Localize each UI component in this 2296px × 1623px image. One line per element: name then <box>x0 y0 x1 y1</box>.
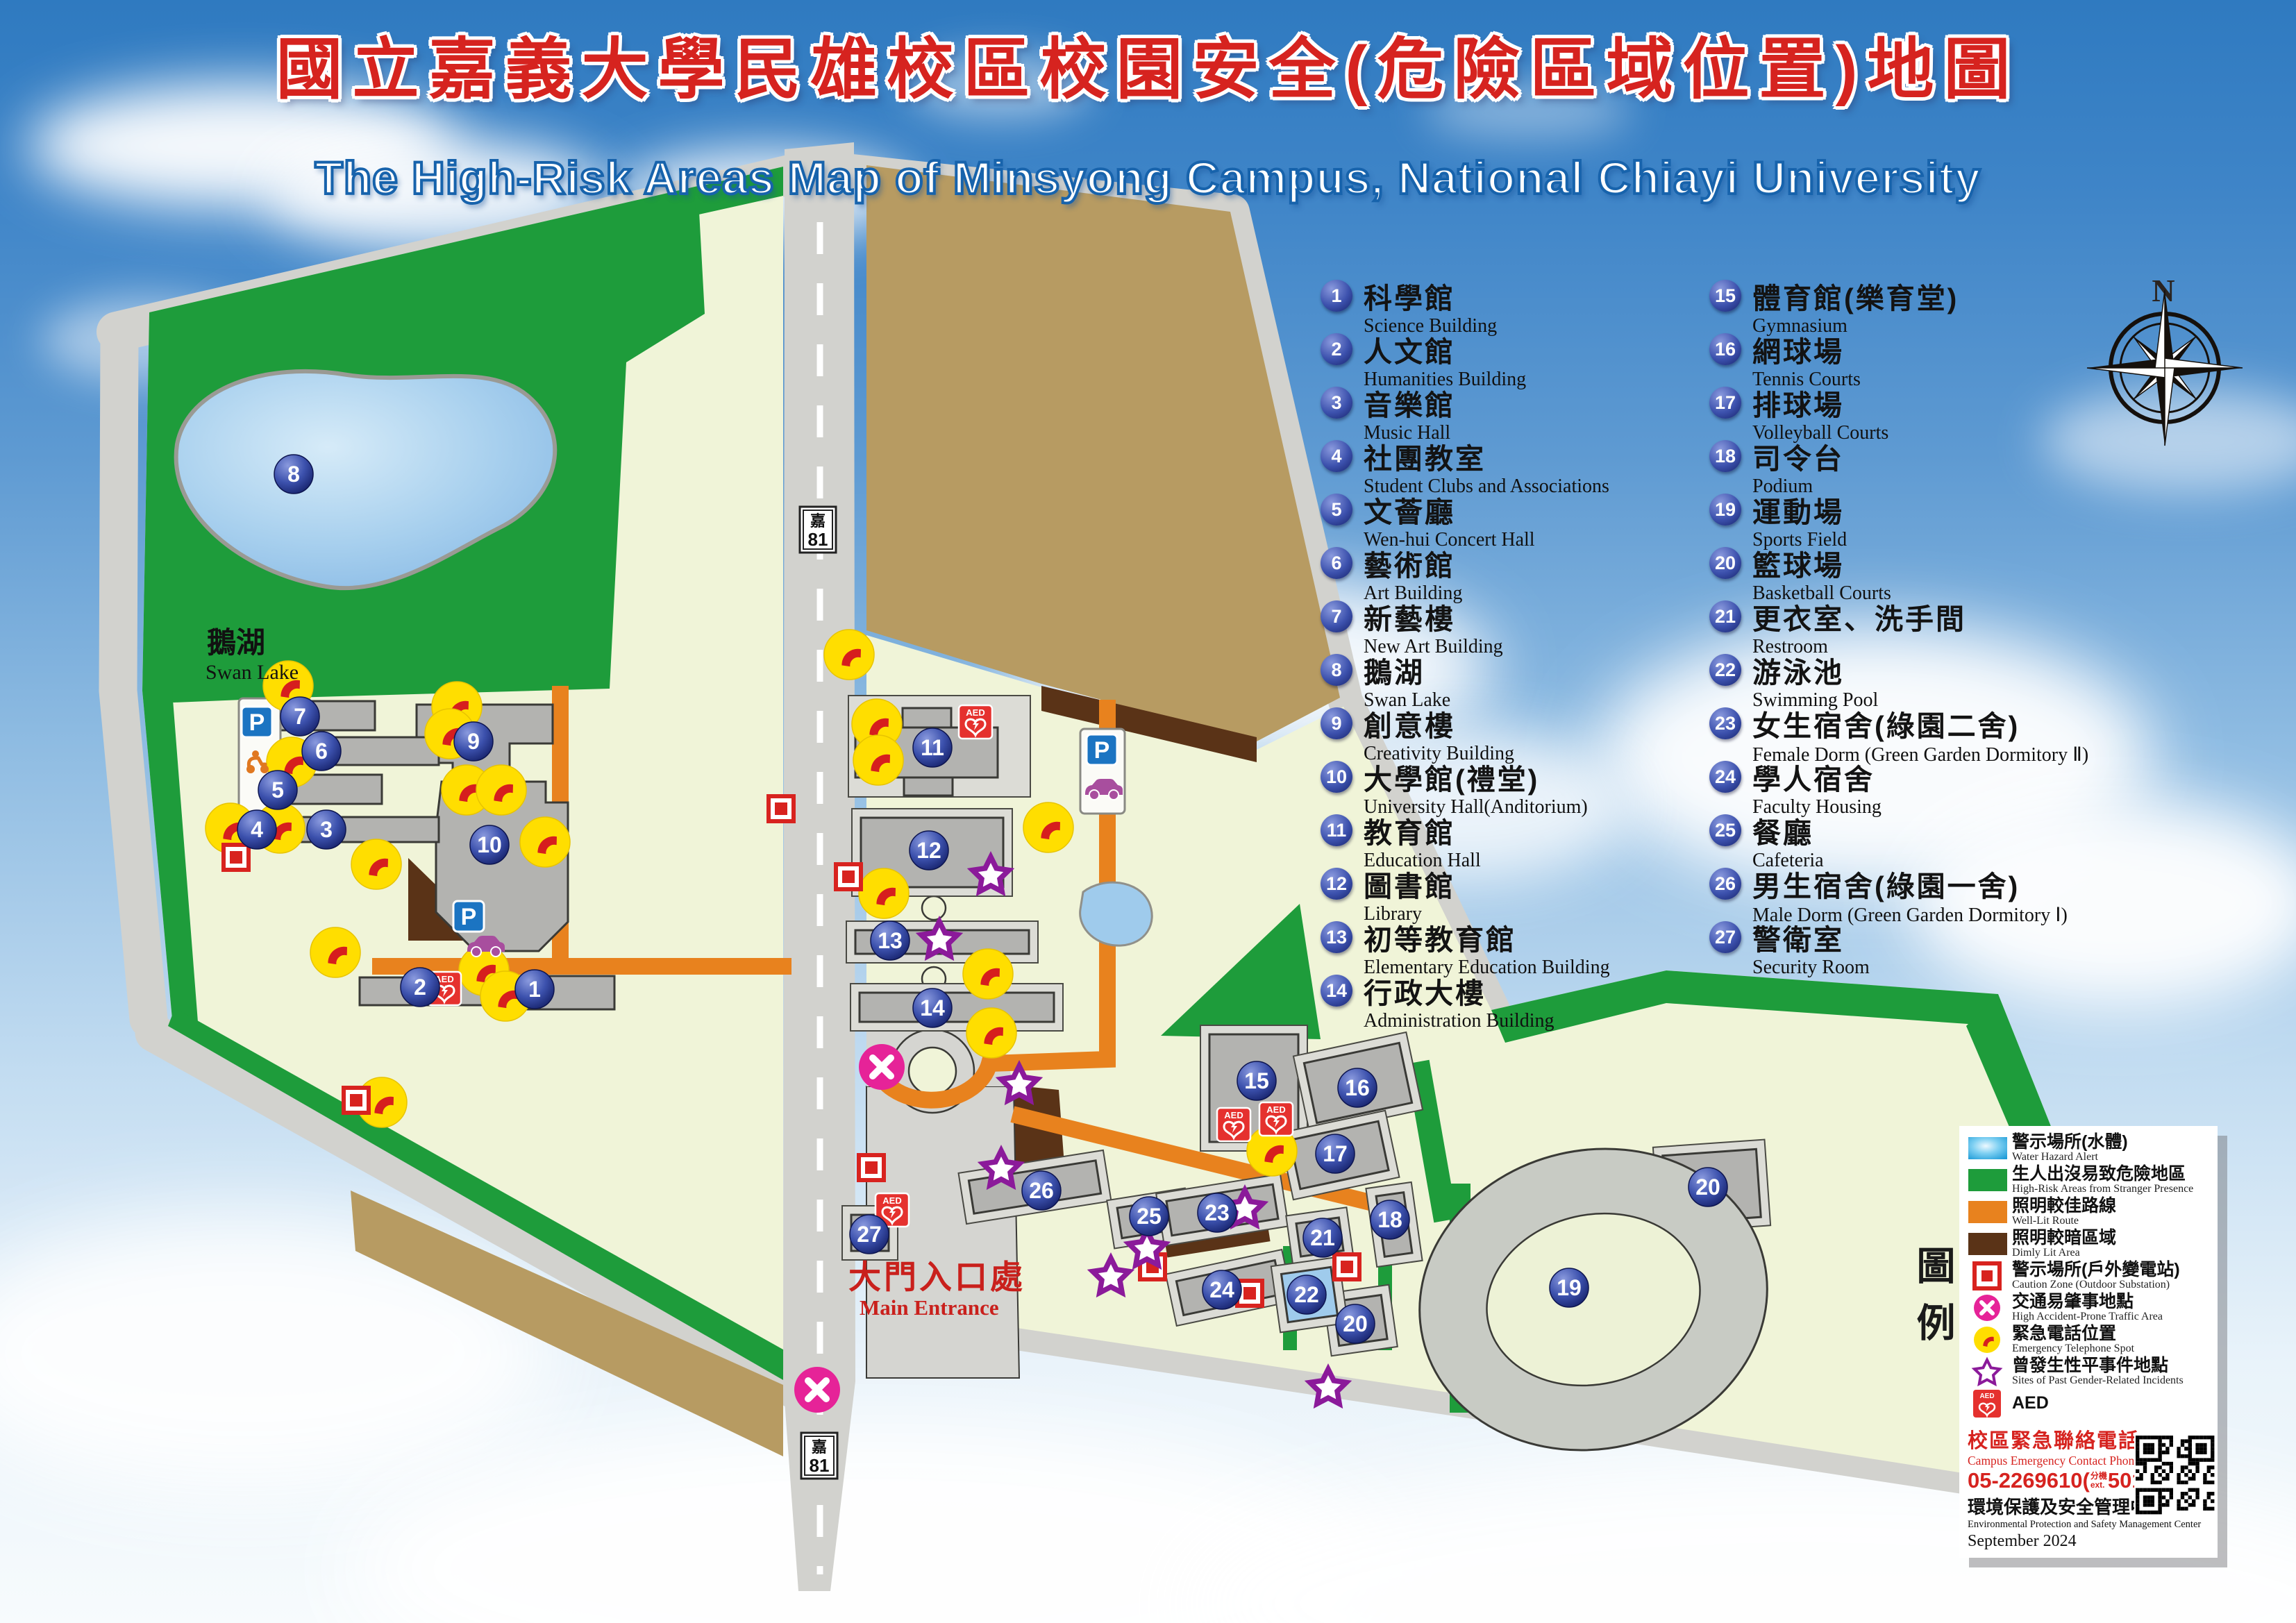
svg-text:12: 12 <box>916 838 941 863</box>
legend-panel-label: 圖例 <box>1905 1245 1961 1359</box>
legend-item-water: 警示場所(水體)Water Hazard Alert <box>1968 1133 2212 1163</box>
list-badge-11: 11 <box>1321 814 1352 846</box>
emergency-phone-icon <box>859 868 909 918</box>
list-label-zh-25: 餐廳 <box>1752 809 1813 851</box>
legend-item-star: 曾發生性平事件地點Sites of Past Gender-Related In… <box>1968 1356 2212 1387</box>
main-entrance-label-en: Main Entrance <box>860 1295 999 1320</box>
list-badge-17: 17 <box>1709 387 1741 419</box>
svg-text:18: 18 <box>1377 1207 1402 1232</box>
list-label-zh-27: 警衛室 <box>1752 916 1844 958</box>
map-marker-7: 7 <box>280 697 319 736</box>
map-marker-22: 22 <box>1287 1275 1326 1314</box>
map-marker-20: 20 <box>1689 1168 1727 1206</box>
legend-text: AED <box>2012 1395 2049 1413</box>
legend-item-substation: 警示場所(戶外變電站)Caution Zone (Outdoor Substat… <box>1968 1261 2212 1291</box>
list-label-zh-26: 男生宿舍(綠園一舍) <box>1752 863 2020 905</box>
map-marker-23: 23 <box>1198 1193 1237 1232</box>
substation-caution-icon <box>769 796 794 821</box>
legend-text: 警示場所(水體)Water Hazard Alert <box>2012 1134 2128 1163</box>
svg-text:15: 15 <box>1244 1068 1269 1093</box>
map-marker-4: 4 <box>237 810 276 849</box>
emergency-phone-icon <box>520 817 570 867</box>
legend-item-traffic: 交通易肇事地點High Accident-Prone Traffic Area <box>1968 1293 2212 1323</box>
list-item-20: 20籃球場Basketball Courts <box>1709 542 2209 593</box>
list-label-zh-18: 司令台 <box>1752 435 1844 477</box>
map-marker-19: 19 <box>1550 1268 1589 1307</box>
phone-ext-en: ext. <box>2090 1481 2107 1490</box>
svg-text:AED: AED <box>966 707 984 718</box>
legend-symbol-water <box>1968 1133 2012 1163</box>
svg-text:AED: AED <box>1979 1393 1994 1400</box>
list-label-zh-21: 更衣室、洗手間 <box>1752 596 1966 637</box>
legend-label-zh: 照明較佳路線 <box>2012 1197 2116 1216</box>
svg-text:10: 10 <box>477 832 502 857</box>
farmland-top-right <box>866 165 1340 741</box>
list-badge-12: 12 <box>1321 868 1352 900</box>
legend-symbol-substation <box>1968 1261 2012 1291</box>
svg-text:P: P <box>1094 737 1110 764</box>
parking-sign-icon: P <box>453 901 484 932</box>
list-item-13: 13初等教育館Elementary Education Building <box>1321 916 1709 967</box>
main-entrance-label-zh: 大門入口處 <box>848 1259 1025 1295</box>
phone-ext: 分機ext. <box>2090 1472 2107 1489</box>
svg-text:13: 13 <box>878 928 903 953</box>
map-marker-16: 16 <box>1338 1068 1377 1107</box>
list-badge-4: 4 <box>1321 440 1352 472</box>
legend-label-zh: 交通易肇事地點 <box>2012 1293 2163 1311</box>
emergency-title-en: Campus Emergency Contact Phone Number <box>1968 1454 2131 1468</box>
svg-text:20: 20 <box>1695 1175 1720 1200</box>
list-badge-18: 18 <box>1709 440 1741 472</box>
legend-text: 照明較暗區域Dimly Lit Area <box>2012 1229 2116 1259</box>
phone-legend-icon <box>1968 1325 2009 1355</box>
legend-item-aed: AEDAED <box>1968 1388 2212 1419</box>
emergency-phone-icon <box>351 839 401 889</box>
list-label-zh-19: 運動場 <box>1752 489 1844 530</box>
list-badge-1: 1 <box>1321 280 1352 312</box>
list-label-zh-22: 游泳池 <box>1752 649 1844 691</box>
brown-legend-icon <box>1968 1229 2009 1259</box>
poster-stage: AEDAEDAEDAEDAEDPPP嘉81嘉81 123456789101112… <box>0 0 2296 1623</box>
svg-text:嘉: 嘉 <box>810 512 826 530</box>
map-marker-9: 9 <box>454 722 493 761</box>
list-label-en-14: Administration Building <box>1364 1010 1709 1032</box>
list-badge-20: 20 <box>1709 547 1741 579</box>
legend-label-zh: 曾發生性平事件地點 <box>2012 1357 2184 1375</box>
emergency-org-zh: 環境保護及安全管理中心 <box>1968 1493 2131 1519</box>
phone-prefix: 05-2269610( <box>1968 1468 2090 1493</box>
list-item-26: 26男生宿舍(綠園一舍)Male Dorm (Green Garden Dorm… <box>1709 863 2209 914</box>
svg-text:25: 25 <box>1137 1204 1162 1229</box>
list-item-15: 15體育館(樂育堂)Gymnasium <box>1709 275 2209 326</box>
map-marker-13: 13 <box>871 921 910 960</box>
emergency-phone-icon <box>853 735 903 785</box>
building <box>860 993 1054 1022</box>
map-marker-10: 10 <box>470 825 509 864</box>
svg-text:20: 20 <box>1343 1311 1368 1336</box>
legend-label-zh: 生人出沒易致危險地區 <box>2012 1166 2193 1184</box>
list-label-zh-24: 學人宿舍 <box>1752 756 1875 798</box>
legend-label-zh: 緊急電話位置 <box>2012 1325 2134 1343</box>
list-badge-3: 3 <box>1321 387 1352 419</box>
svg-text:2: 2 <box>414 975 426 1000</box>
list-badge-5: 5 <box>1321 494 1352 525</box>
list-item-12: 12圖書館Library <box>1321 863 1709 914</box>
list-label-zh-11: 教育館 <box>1364 809 1455 851</box>
list-label-en-27: Security Room <box>1752 957 2209 979</box>
svg-text:16: 16 <box>1345 1075 1370 1100</box>
map-marker-14: 14 <box>913 989 952 1027</box>
list-label-zh-8: 鵝湖 <box>1364 649 1425 691</box>
legend-label-zh: AED <box>2012 1395 2049 1413</box>
emergency-contact: 校區緊急聯絡電話 Campus Emergency Contact Phone … <box>1968 1424 2212 1551</box>
water-legend-icon <box>1968 1133 2009 1163</box>
list-badge-10: 10 <box>1321 761 1352 793</box>
list-badge-8: 8 <box>1321 654 1352 686</box>
list-badge-21: 21 <box>1709 600 1741 632</box>
swan-lake-label-en: Swan Lake <box>206 661 299 684</box>
list-label-zh-2: 人文館 <box>1364 328 1455 370</box>
list-badge-15: 15 <box>1709 280 1741 312</box>
list-item-10: 10大學館(禮堂)University Hall(Anditorium) <box>1321 756 1709 807</box>
list-label-zh-16: 網球場 <box>1752 328 1844 370</box>
list-item-1: 1科學館Science Building <box>1321 275 1709 326</box>
list-item-4: 4社團教室Student Clubs and Associations <box>1321 435 1709 486</box>
list-label-zh-23: 女生宿舍(綠園二舍) <box>1752 703 2020 744</box>
legend-label-en: High Accident-Prone Traffic Area <box>2012 1311 2163 1322</box>
aed-icon: AED <box>1217 1108 1250 1141</box>
list-label-zh-14: 行政大樓 <box>1364 970 1486 1011</box>
list-label-zh-7: 新藝樓 <box>1364 596 1455 637</box>
svg-text:AED: AED <box>1224 1110 1243 1120</box>
substation-caution-icon <box>859 1155 884 1180</box>
svg-text:P: P <box>249 709 265 736</box>
pond <box>1080 882 1153 945</box>
page-subtitle: The High-Risk Areas Map of Minsyong Camp… <box>0 151 2296 204</box>
map-marker-17: 17 <box>1316 1134 1355 1173</box>
svg-text:17: 17 <box>1323 1141 1348 1166</box>
list-badge-27: 27 <box>1709 921 1741 953</box>
page-title: 國立嘉義大學民雄校區校園安全(危險區域位置)地圖 <box>0 15 2296 112</box>
legend-text: 照明較佳路線Well-Lit Route <box>2012 1197 2116 1227</box>
svg-text:81: 81 <box>810 1455 830 1476</box>
svg-text:5: 5 <box>271 777 284 802</box>
orange-legend-icon <box>1968 1197 2009 1227</box>
legend-symbol-green <box>1968 1165 2012 1195</box>
map-marker-21: 21 <box>1303 1218 1342 1257</box>
map-marker-3: 3 <box>307 810 346 849</box>
legend-text: 交通易肇事地點High Accident-Prone Traffic Area <box>2012 1293 2163 1322</box>
legend-label-zh: 警示場所(戶外變電站) <box>2012 1261 2180 1279</box>
emergency-phone-icon <box>476 765 526 815</box>
map-marker-5: 5 <box>258 771 297 809</box>
svg-text:22: 22 <box>1294 1282 1319 1307</box>
star-legend-icon <box>1968 1356 2009 1387</box>
qr-code-image <box>2134 1434 2216 1516</box>
svg-text:11: 11 <box>921 735 944 760</box>
map-marker-12: 12 <box>910 831 948 870</box>
legend-symbol-aed: AED <box>1968 1388 2012 1419</box>
list-label-zh-1: 科學館 <box>1364 275 1455 317</box>
list-badge-24: 24 <box>1709 761 1741 793</box>
legend-label-zh: 照明較暗區域 <box>2012 1229 2116 1247</box>
legend-symbol-star <box>1968 1356 2012 1387</box>
map-marker-25: 25 <box>1130 1197 1168 1236</box>
svg-text:81: 81 <box>808 529 828 550</box>
swan-lake-label-zh: 鵝湖 <box>207 626 265 659</box>
traffic-accident-icon <box>859 1044 905 1090</box>
legend-item-brown: 照明較暗區域Dimly Lit Area <box>1968 1229 2212 1259</box>
svg-text:24: 24 <box>1209 1277 1234 1302</box>
list-item-25: 25餐廳Cafeteria <box>1709 809 2209 860</box>
aed-legend-icon: AED <box>1968 1388 2009 1419</box>
substation-caution-icon <box>224 845 249 870</box>
svg-text:27: 27 <box>857 1222 882 1247</box>
route-81-sign: 嘉81 <box>800 507 836 553</box>
legend-text: 警示場所(戶外變電站)Caution Zone (Outdoor Substat… <box>2012 1261 2180 1290</box>
svg-text:26: 26 <box>1029 1178 1054 1203</box>
legend-symbol-orange <box>1968 1197 2012 1227</box>
legend-label-en: Well-Lit Route <box>2012 1216 2116 1227</box>
legend-label-en: Sites of Past Gender-Related Incidents <box>2012 1375 2184 1386</box>
list-label-zh-10: 大學館(禮堂) <box>1364 756 1539 798</box>
legend-panel: 警示場所(水體)Water Hazard Alert生人出沒易致危險地區High… <box>1959 1126 2218 1558</box>
location-list-column-1: 1科學館Science Building2人文館Humanities Build… <box>1321 275 1709 1023</box>
list-badge-7: 7 <box>1321 600 1352 632</box>
list-label-zh-12: 圖書館 <box>1364 863 1455 905</box>
svg-text:9: 9 <box>467 729 480 754</box>
legend-item-green: 生人出沒易致危險地區High-Risk Areas from Stranger … <box>1968 1165 2212 1195</box>
substation-caution-icon <box>344 1088 369 1113</box>
legend-rows: 警示場所(水體)Water Hazard Alert生人出沒易致危險地區High… <box>1968 1133 2212 1419</box>
green-legend-icon <box>1968 1165 2009 1195</box>
emergency-phone-icon <box>310 927 360 977</box>
list-label-zh-4: 社團教室 <box>1364 435 1486 477</box>
emergency-phone-icon <box>963 949 1013 999</box>
list-badge-23: 23 <box>1709 707 1741 739</box>
svg-text:AED: AED <box>1266 1104 1285 1115</box>
list-badge-26: 26 <box>1709 868 1741 900</box>
legend-label-en: Emergency Telephone Spot <box>2012 1343 2134 1354</box>
aed-icon: AED <box>1259 1102 1293 1136</box>
list-label-zh-15: 體育館(樂育堂) <box>1752 275 1959 317</box>
svg-text:7: 7 <box>294 704 306 729</box>
list-item-8: 8鵝湖Swan Lake <box>1321 649 1709 700</box>
list-badge-9: 9 <box>1321 707 1352 739</box>
emergency-phone-icon <box>1023 802 1073 852</box>
svg-text:6: 6 <box>315 739 328 764</box>
legend-item-phone: 緊急電話位置Emergency Telephone Spot <box>1968 1325 2212 1355</box>
list-label-zh-6: 藝術館 <box>1364 542 1455 584</box>
legend-text: 曾發生性平事件地點Sites of Past Gender-Related In… <box>2012 1357 2184 1386</box>
emergency-title-zh: 校區緊急聯絡電話 <box>1968 1424 2131 1454</box>
list-badge-14: 14 <box>1321 975 1352 1007</box>
map-marker-8: 8 <box>274 455 313 494</box>
map-marker-6: 6 <box>302 732 341 771</box>
substation-caution-icon <box>836 864 861 889</box>
qr-code <box>2134 1434 2216 1551</box>
legend-label-zh: 警示場所(水體) <box>2012 1134 2128 1152</box>
svg-text:23: 23 <box>1205 1200 1230 1225</box>
traffic-legend-icon <box>1968 1293 2009 1323</box>
svg-text:8: 8 <box>287 462 300 487</box>
map-marker-1: 1 <box>515 970 554 1009</box>
list-label-zh-13: 初等教育館 <box>1364 916 1516 958</box>
parking-sign-icon: P <box>242 707 272 737</box>
list-item-16: 16網球場Tennis Courts <box>1709 328 2209 379</box>
list-item-22: 22游泳池Swimming Pool <box>1709 649 2209 700</box>
list-label-zh-5: 文薈廳 <box>1364 489 1455 530</box>
list-badge-13: 13 <box>1321 921 1352 953</box>
list-item-7: 7新藝樓New Art Building <box>1321 596 1709 646</box>
list-item-19: 19運動場Sports Field <box>1709 489 2209 539</box>
list-item-18: 18司令台Podium <box>1709 435 2209 486</box>
list-label-zh-17: 排球場 <box>1752 382 1844 423</box>
legend-symbol-phone <box>1968 1325 2012 1355</box>
parking-sign-icon: P <box>1087 734 1117 765</box>
emergency-contact-text: 校區緊急聯絡電話 Campus Emergency Contact Phone … <box>1968 1424 2131 1551</box>
svg-text:3: 3 <box>320 817 333 842</box>
list-item-21: 21更衣室、洗手間Restroom <box>1709 596 2209 646</box>
list-item-2: 2人文館Humanities Building <box>1321 328 1709 379</box>
traffic-accident-icon <box>794 1367 840 1413</box>
list-badge-22: 22 <box>1709 654 1741 686</box>
list-item-23: 23女生宿舍(綠園二舍)Female Dorm (Green Garden Do… <box>1709 703 2209 753</box>
list-badge-16: 16 <box>1709 333 1741 365</box>
emergency-org-en: Environmental Protection and Safety Mana… <box>1968 1519 2131 1531</box>
emergency-phone-icon <box>824 630 874 680</box>
substation-legend-icon <box>1968 1261 2009 1291</box>
emergency-date: September 2024 <box>1968 1532 2131 1551</box>
svg-text:P: P <box>461 904 477 930</box>
svg-text:1: 1 <box>528 977 541 1002</box>
map-marker-2: 2 <box>401 968 439 1007</box>
list-badge-25: 25 <box>1709 814 1741 846</box>
svg-text:AED: AED <box>882 1195 901 1206</box>
list-badge-19: 19 <box>1709 494 1741 525</box>
map-marker-15: 15 <box>1237 1061 1276 1100</box>
aed-icon: AED <box>959 705 992 739</box>
legend-symbol-brown <box>1968 1229 2012 1259</box>
legend-text: 緊急電話位置Emergency Telephone Spot <box>2012 1325 2134 1354</box>
map-marker-27: 27 <box>850 1215 889 1254</box>
map-marker-20: 20 <box>1336 1304 1375 1343</box>
map-marker-26: 26 <box>1022 1171 1061 1210</box>
legend-label-en: Water Hazard Alert <box>2012 1152 2128 1163</box>
map-marker-11: 11 <box>913 728 952 767</box>
list-label-zh-20: 籃球場 <box>1752 542 1844 584</box>
map-marker-18: 18 <box>1371 1200 1409 1239</box>
svg-text:嘉: 嘉 <box>812 1438 827 1456</box>
list-label-zh-9: 創意樓 <box>1364 703 1455 744</box>
svg-text:19: 19 <box>1557 1275 1582 1300</box>
route-81-sign: 嘉81 <box>801 1433 837 1479</box>
svg-text:4: 4 <box>251 817 263 842</box>
substation-caution-icon <box>1334 1254 1359 1279</box>
list-label-zh-3: 音樂館 <box>1364 382 1455 423</box>
legend-label-en: Dimly Lit Area <box>2012 1247 2116 1259</box>
list-badge-2: 2 <box>1321 333 1352 365</box>
location-list-column-2: 15體育館(樂育堂)Gymnasium16網球場Tennis Courts17排… <box>1709 275 2209 970</box>
list-item-17: 17排球場Volleyball Courts <box>1709 382 2209 432</box>
list-item-9: 9創意樓Creativity Building <box>1321 703 1709 753</box>
legend-text: 生人出沒易致危險地區High-Risk Areas from Stranger … <box>2012 1166 2193 1195</box>
emergency-phone-icon <box>966 1008 1016 1058</box>
list-badge-6: 6 <box>1321 547 1352 579</box>
legend-item-orange: 照明較佳路線Well-Lit Route <box>1968 1197 2212 1227</box>
svg-text:14: 14 <box>920 995 945 1020</box>
legend-label-en: High-Risk Areas from Stranger Presence <box>2012 1184 2193 1195</box>
legend-symbol-traffic <box>1968 1293 2012 1323</box>
map-marker-24: 24 <box>1203 1270 1241 1309</box>
emergency-phone: 05-2269610(分機ext.5010) <box>1968 1468 2131 1493</box>
legend-label-en: Caution Zone (Outdoor Substation) <box>2012 1279 2180 1290</box>
svg-text:21: 21 <box>1310 1225 1335 1250</box>
